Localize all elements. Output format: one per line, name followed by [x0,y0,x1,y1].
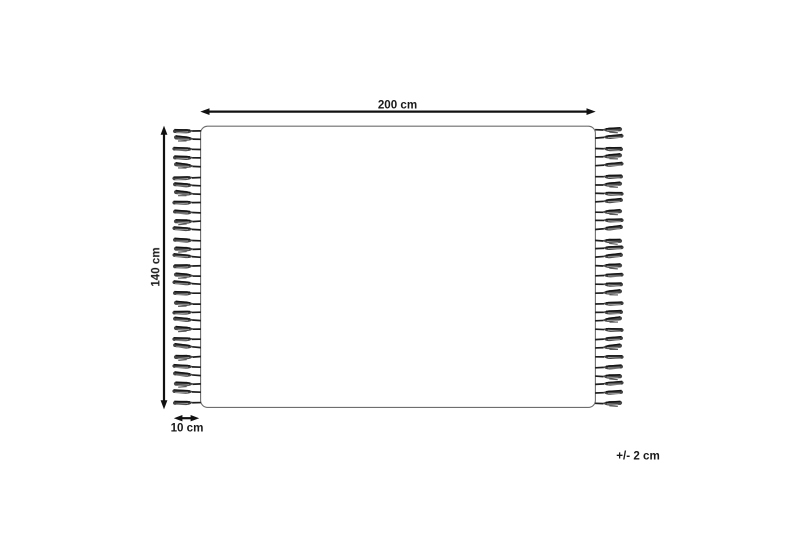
svg-text:200 cm: 200 cm [378,99,417,112]
svg-text:10 cm: 10 cm [171,422,204,435]
svg-text:140 cm: 140 cm [149,247,162,286]
svg-text:+/- 2 cm: +/- 2 cm [616,450,660,463]
